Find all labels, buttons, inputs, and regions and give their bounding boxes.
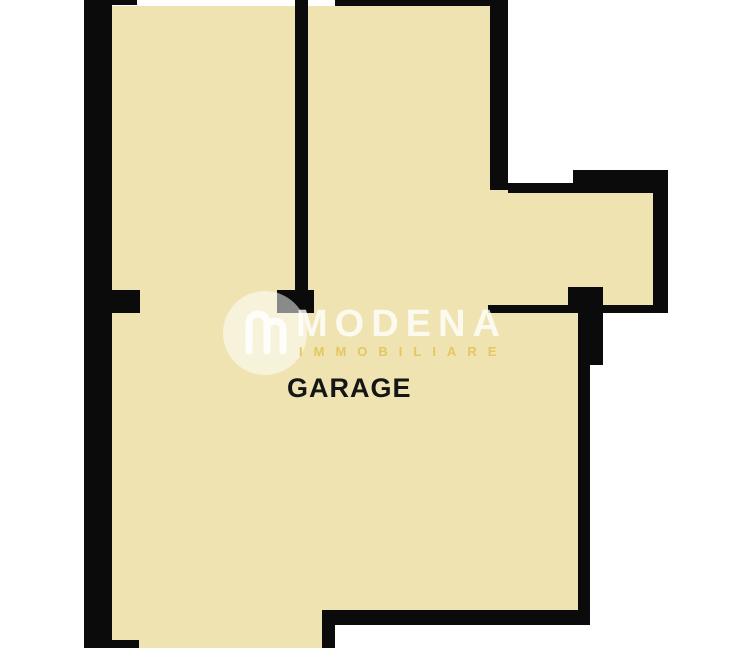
m-logo-icon bbox=[233, 301, 297, 365]
room-top-left bbox=[112, 6, 295, 313]
wall-extension-right bbox=[653, 170, 668, 313]
watermark-subtitle-text: IMMOBILIARE bbox=[299, 344, 529, 360]
room-top-right bbox=[308, 6, 490, 313]
wall-left bbox=[84, 0, 112, 648]
watermark-brand-text: MODENA bbox=[296, 306, 526, 342]
wall-garage-bottom bbox=[322, 610, 590, 625]
room-garage-lower-left bbox=[112, 613, 322, 648]
wall-pillar bbox=[568, 287, 603, 313]
wall-bottom-left-stub bbox=[112, 640, 139, 648]
floorplan-canvas: MODENA IMMOBILIARE GARAGE bbox=[0, 0, 736, 648]
wall-right-room-side bbox=[490, 5, 508, 190]
garage-label: GARAGE bbox=[287, 373, 427, 404]
wall-top-left-remnant bbox=[112, 0, 137, 5]
wall-bottom-stub bbox=[322, 613, 335, 648]
wall-middle-divider bbox=[295, 0, 308, 290]
wall-top-right bbox=[335, 0, 508, 6]
wall-door-jamb-left bbox=[112, 290, 140, 313]
wall-garage-right-thick bbox=[578, 313, 603, 365]
wall-extension-top-thin bbox=[508, 183, 575, 193]
